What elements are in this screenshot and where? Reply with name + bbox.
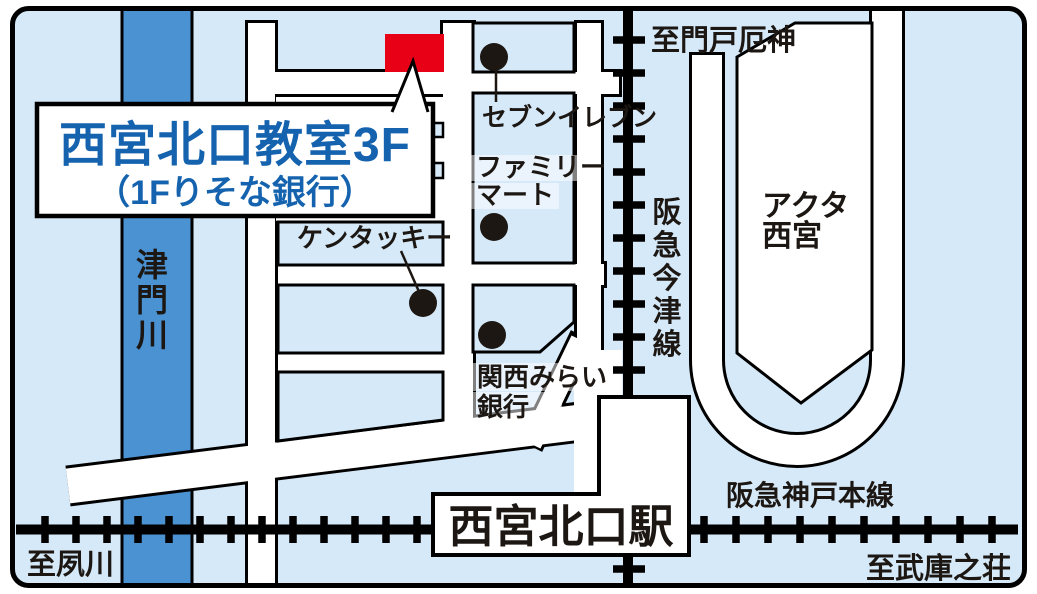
station-label: 西宮北口駅 [448, 501, 673, 552]
label-family-mart-1: ファミリー [476, 152, 606, 182]
access-map: 西宮北口駅 西宮北口教室3F （1Fりそな銀行） セブンイレブン ファミリー マ… [0, 0, 1037, 594]
poi-dot-seven-eleven [480, 43, 508, 71]
label-kentucky: ケンタッキー [297, 223, 452, 253]
label-family-mart-2: マート [476, 180, 554, 210]
river-char-1: 津 [136, 247, 168, 283]
map-canvas: 西宮北口駅 西宮北口教室3F （1Fりそな銀行） セブンイレブン ファミリー マ… [0, 0, 1037, 594]
poi-dot-kansai-mirai [478, 321, 506, 349]
label-imazu-line-vertical: 阪 急 今 津 線 [652, 196, 681, 361]
label-acta-1: アクタ [762, 190, 849, 223]
label-kansai-mirai-1: 関西みらい [477, 362, 607, 392]
label-to-mondo-yakujin: 至門戸厄神 [651, 24, 796, 57]
label-kansai-mirai-2: 銀行 [477, 392, 529, 422]
poi-dot-family-mart [480, 213, 508, 241]
label-kobe-main-line: 阪急神戸本線 [726, 479, 894, 511]
title-line2: （1Fりそな銀行） [96, 173, 374, 212]
imazu-char-4: 津 [652, 295, 681, 328]
river-char-3: 川 [136, 317, 168, 353]
label-river-vertical: 津 門 川 [136, 247, 168, 353]
imazu-char-3: 今 [652, 261, 681, 295]
river-char-2: 門 [136, 282, 168, 318]
imazu-char-5: 線 [652, 327, 681, 361]
imazu-char-2: 急 [652, 229, 681, 262]
poi-dot-kentucky [409, 289, 437, 317]
label-acta-2: 西宮 [762, 220, 822, 253]
label-to-shukugawa: 至夙川 [27, 549, 114, 581]
imazu-char-1: 阪 [652, 196, 681, 229]
label-to-mukonoso: 至武庫之荘 [866, 551, 1011, 585]
title-line1: 西宮北口教室3F [59, 119, 411, 172]
label-seven-eleven: セブンイレブン [482, 103, 657, 132]
